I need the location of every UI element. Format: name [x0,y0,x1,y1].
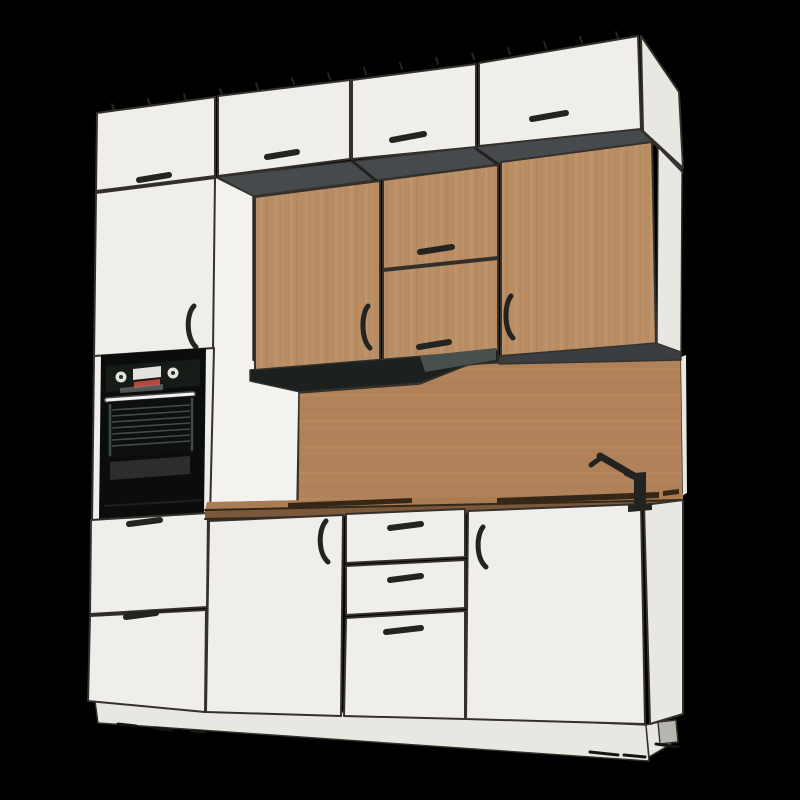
base-drawer-2[interactable] [346,560,465,615]
wall-cabinet-door-left[interactable] [255,181,380,371]
handle [126,613,156,617]
base-right-side [644,500,683,724]
handle [129,520,160,524]
handle [386,628,421,632]
wall-cabinet-door-right[interactable] [501,142,656,356]
handle [390,576,421,580]
top-box-door-3[interactable] [352,64,476,159]
wall-cabinet-flap-top[interactable] [383,165,498,269]
tall-cabinet-door[interactable] [94,178,215,359]
kitchen-render [0,0,800,800]
oven-knob-dot [171,371,175,375]
base-drawer-1[interactable] [346,509,465,563]
render-canvas [0,0,800,800]
tall-cabinet-drawer-1[interactable] [90,513,208,614]
top-box-door-2[interactable] [218,80,350,176]
wall-cabinet-flap-bottom[interactable] [383,259,498,363]
tall-cabinet-drawer-2[interactable] [88,610,206,712]
adjustable-foot [658,720,678,744]
base-cabinets [206,500,683,724]
handle [390,524,421,528]
tall-oven-cabinet [88,178,215,712]
oven-knob-dot [119,375,123,379]
wall-cabinet-right-side [657,147,682,352]
base-door-right[interactable] [466,504,645,724]
